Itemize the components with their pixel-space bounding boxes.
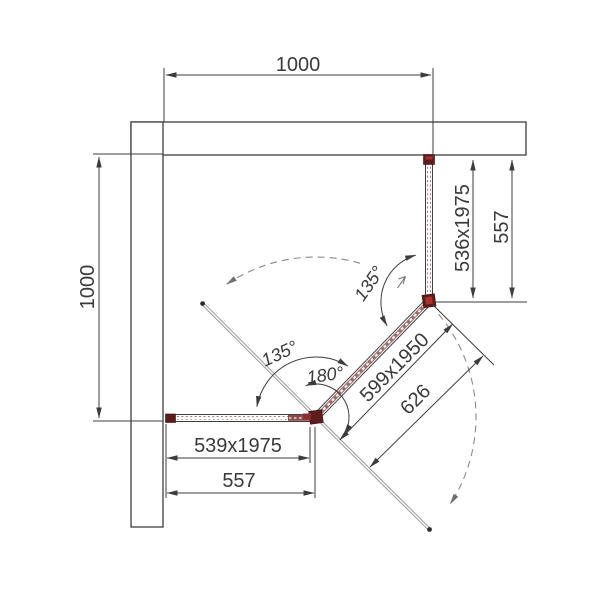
bracket-accent: [426, 157, 433, 160]
angle-label-top: 135°: [350, 263, 388, 305]
dimension-left-height: 1000: [77, 157, 99, 418]
dim-label-right-panel: 536x1975: [452, 184, 474, 272]
bottom-fixed-panel: [166, 414, 317, 423]
walls: [131, 122, 526, 527]
angle-top-135: 135°: [350, 255, 415, 326]
door-open-position-downright: [318, 419, 432, 532]
dimension-right-offset: 557: [491, 160, 513, 298]
dimension-top-width: 1000: [166, 54, 431, 76]
door-swing-arc-right: [439, 314, 476, 504]
dim-label-top-width: 1000: [276, 54, 321, 76]
angle-label-door-swing: 180°: [305, 363, 345, 388]
swing-direction-arrow-icon: [398, 277, 406, 289]
left-wall: [131, 122, 163, 527]
top-hinge-accent: [425, 297, 433, 305]
dimension-right-panel: 536x1975: [452, 160, 474, 298]
right-fixed-panel: [424, 155, 435, 302]
dim-label-bottom-offset: 557: [222, 470, 255, 492]
top-wall: [131, 122, 526, 155]
wall-bracket: [166, 414, 176, 423]
dimension-door-panel: 599x1950: [340, 324, 453, 440]
dim-label-left-height: 1000: [77, 265, 99, 310]
door-edge-dot: [427, 527, 432, 532]
dimension-bottom-offset: 557: [167, 470, 314, 493]
dimension-bottom-panel: 539x1975: [167, 435, 309, 458]
dim-label-right-offset: 557: [491, 210, 513, 243]
technical-drawing-svg: 1000 1000 536x1975 557 599x1950 626 539x…: [0, 0, 600, 600]
bottom-hinge-accent: [303, 414, 311, 420]
dim-label-door-offset: 626: [396, 380, 435, 419]
shower-enclosure-plan-drawing: 1000 1000 536x1975 557 599x1950 626 539x…: [0, 0, 600, 600]
angle-label-bottom: 135°: [258, 337, 300, 371]
door-open-position-upleft: [200, 301, 314, 415]
door-edge-dot: [200, 301, 205, 306]
door-swing-arc-left: [227, 257, 361, 284]
dim-label-bottom-panel: 539x1975: [194, 435, 282, 457]
